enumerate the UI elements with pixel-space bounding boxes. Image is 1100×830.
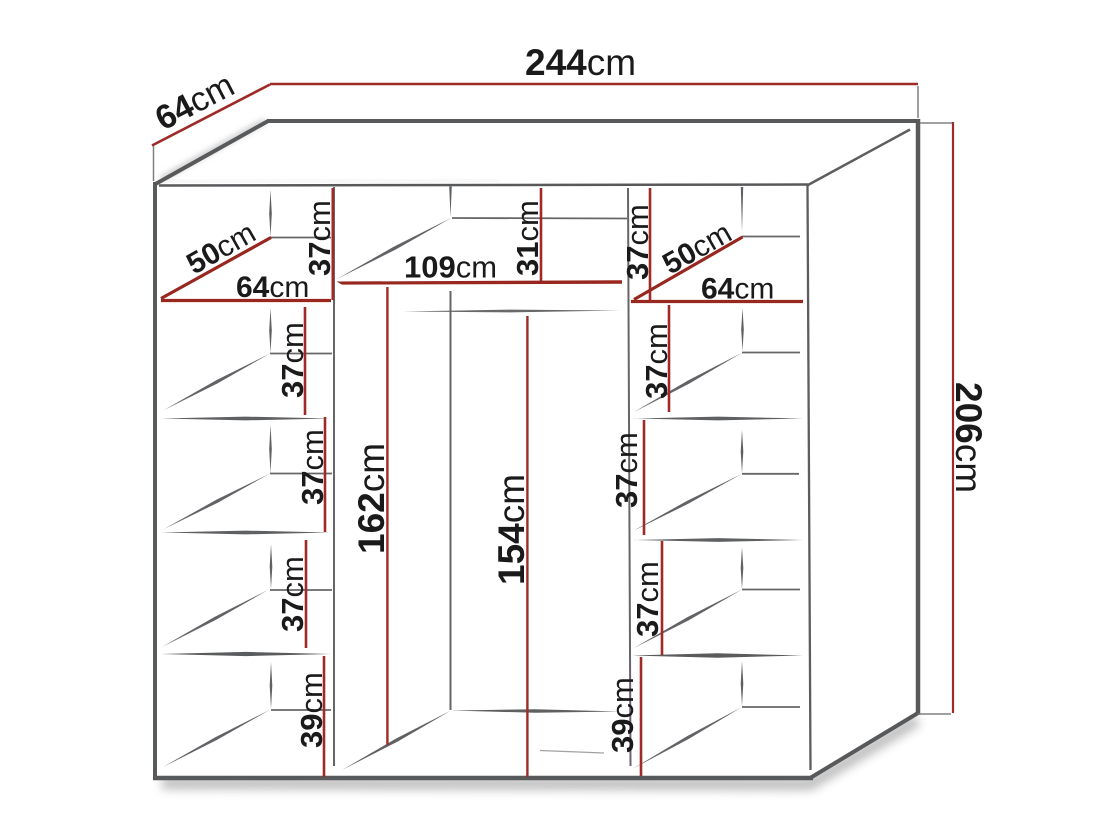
svg-text:37cm: 37cm [639,323,674,399]
svg-text:37cm: 37cm [630,561,665,637]
svg-text:37cm: 37cm [275,556,310,632]
svg-text:162cm: 162cm [351,443,392,554]
svg-text:39cm: 39cm [294,672,329,748]
svg-text:37cm: 37cm [295,429,330,505]
svg-text:37cm: 37cm [302,200,337,276]
svg-text:244cm: 244cm [525,42,636,83]
svg-text:31cm: 31cm [510,200,545,276]
svg-text:64cm: 64cm [236,271,309,304]
svg-text:37cm: 37cm [609,432,644,508]
svg-text:109cm: 109cm [404,250,497,285]
svg-text:64cm: 64cm [701,273,774,306]
svg-text:206cm: 206cm [948,382,989,493]
svg-text:39cm: 39cm [605,677,640,753]
svg-text:37cm: 37cm [275,322,310,398]
svg-text:154cm: 154cm [491,474,532,585]
svg-text:37cm: 37cm [620,204,655,280]
